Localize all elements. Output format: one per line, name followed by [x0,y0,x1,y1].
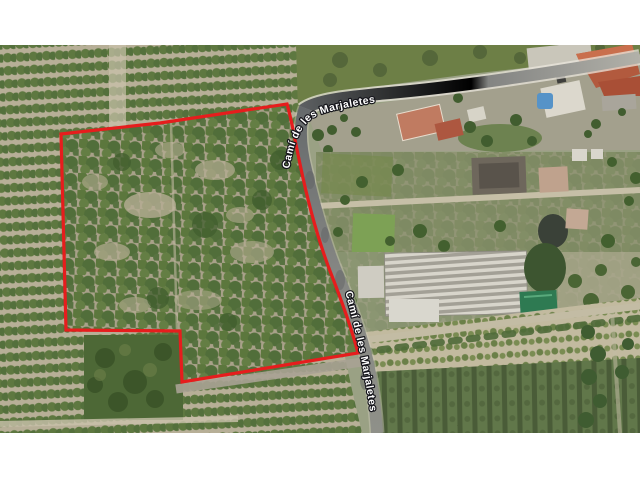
outbuilding [565,208,588,229]
farm-track-vertical [109,45,126,138]
dark-tree-patch [524,243,566,293]
pond [538,214,568,248]
green-patch [321,153,393,197]
flat-roof-inner [479,162,520,188]
map-imagery: Camí de les Marjaletes Camí de les Marja… [0,42,640,433]
white-shed-2 [591,149,603,159]
greenhouse-annex [358,266,385,298]
tan-building [538,166,568,192]
swimming-pool [537,93,553,109]
aerial-photo-frame: Camí de les Marjaletes Camí de les Marja… [0,0,640,480]
satellite-map[interactable]: Camí de les Marjaletes Camí de les Marja… [0,0,640,480]
gray-roof [602,94,637,111]
white-shed-1 [572,149,587,161]
white-shed-row [389,299,439,322]
